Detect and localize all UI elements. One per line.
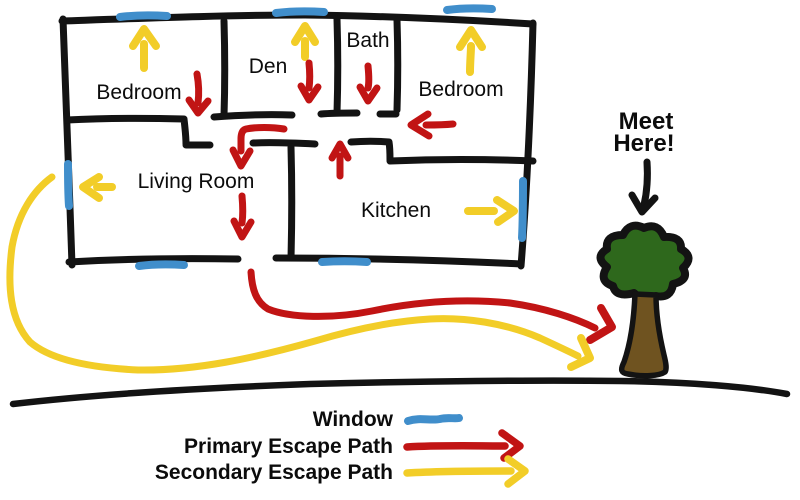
svg-text:Primary Escape Path: Primary Escape Path — [184, 435, 393, 458]
svg-text:Secondary Escape Path: Secondary Escape Path — [155, 461, 393, 484]
svg-text:Here!: Here! — [613, 130, 674, 157]
svg-text:Den: Den — [249, 55, 288, 78]
svg-text:Bath: Bath — [346, 29, 389, 52]
svg-text:Bedroom: Bedroom — [96, 81, 181, 104]
svg-text:Living Room: Living Room — [138, 170, 255, 193]
svg-text:Window: Window — [313, 408, 394, 431]
svg-text:Kitchen: Kitchen — [361, 199, 431, 222]
svg-text:Bedroom: Bedroom — [418, 78, 503, 101]
